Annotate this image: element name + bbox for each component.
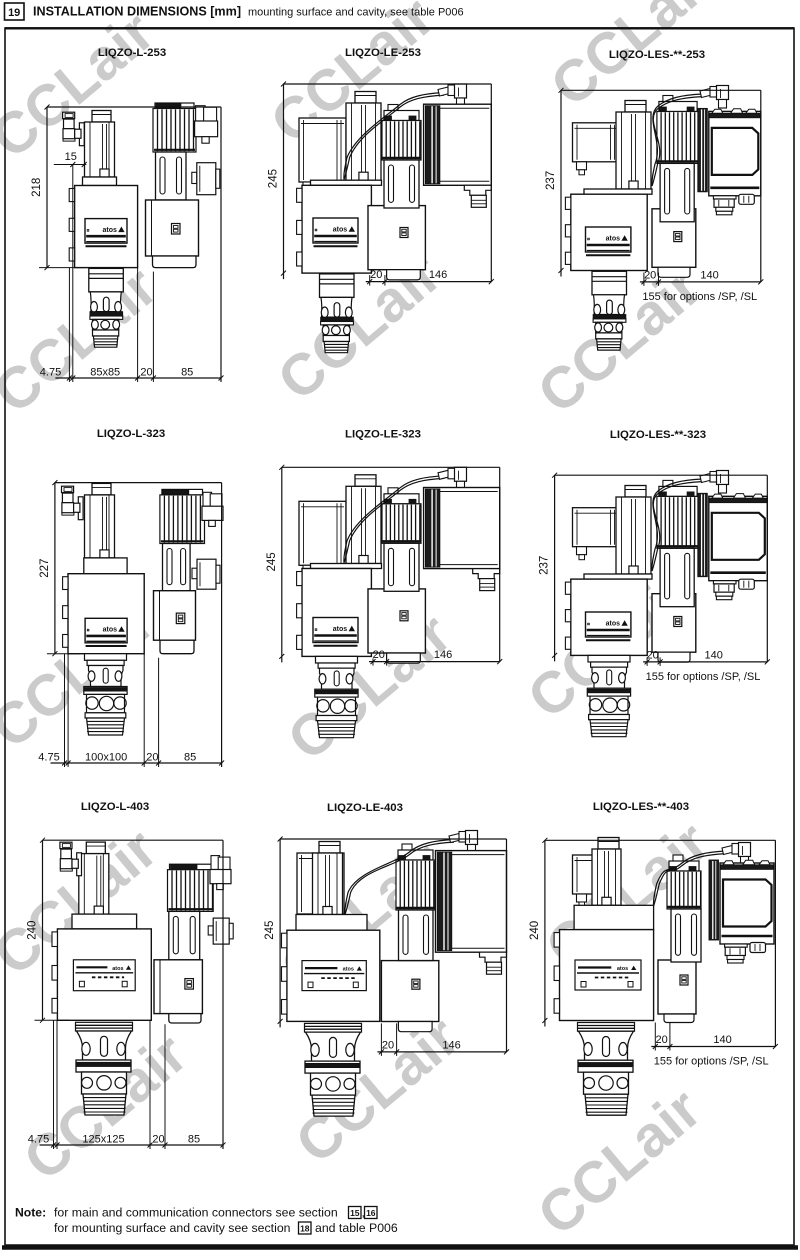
svg-text:LIQZO-LE-323: LIQZO-LE-323 <box>345 429 421 441</box>
svg-text:and table P006: and table P006 <box>315 1221 398 1235</box>
svg-text:20: 20 <box>646 649 658 661</box>
svg-text:LIQZO-L-323: LIQZO-L-323 <box>97 428 165 440</box>
svg-text:LIQZO-LE-403: LIQZO-LE-403 <box>327 802 403 814</box>
svg-text:155 for options /SP, /SL: 155 for options /SP, /SL <box>642 291 757 303</box>
svg-text:LIQZO-L-253: LIQZO-L-253 <box>98 47 166 59</box>
svg-text:19: 19 <box>8 7 20 19</box>
svg-text:85: 85 <box>188 1134 200 1146</box>
svg-text:245: 245 <box>266 552 278 571</box>
svg-text:155 for options /SP, /SL: 155 for options /SP, /SL <box>646 671 761 683</box>
svg-text:atos: atos <box>333 227 348 234</box>
svg-text:Note:: Note: <box>15 1206 46 1220</box>
svg-text:245: 245 <box>264 921 276 940</box>
svg-text:240: 240 <box>27 921 39 940</box>
svg-text:atos: atos <box>103 627 118 634</box>
svg-text:atos: atos <box>617 966 628 972</box>
svg-text:atos: atos <box>102 227 117 234</box>
svg-text:LIQZO-LES-**-403: LIQZO-LES-**-403 <box>593 801 689 813</box>
svg-text:20: 20 <box>655 1034 667 1046</box>
svg-text:85: 85 <box>184 752 196 764</box>
svg-text:20: 20 <box>373 649 385 661</box>
svg-text:atos: atos <box>606 236 621 243</box>
svg-text:237: 237 <box>545 171 557 190</box>
svg-text:for main and communication con: for main and communication connectors se… <box>54 1206 338 1220</box>
svg-text:20: 20 <box>382 1039 394 1051</box>
svg-text:mounting surface and cavity, s: mounting surface and cavity, see table P… <box>248 7 464 19</box>
svg-text:237: 237 <box>539 556 551 575</box>
svg-text:atos: atos <box>112 966 123 972</box>
svg-text:155 for options /SP, /SL: 155 for options /SP, /SL <box>654 1056 769 1068</box>
svg-text:20: 20 <box>152 1134 164 1146</box>
svg-text:85x85: 85x85 <box>90 367 120 379</box>
svg-text:for mounting surface and cavit: for mounting surface and cavity see sect… <box>54 1221 291 1235</box>
svg-text:140: 140 <box>713 1034 731 1046</box>
svg-text:218: 218 <box>31 178 43 197</box>
svg-text:20: 20 <box>140 367 152 379</box>
svg-text:140: 140 <box>705 649 723 661</box>
svg-text:atos: atos <box>333 626 348 633</box>
svg-text:85: 85 <box>181 367 193 379</box>
svg-text:atos: atos <box>606 621 621 628</box>
svg-text:15: 15 <box>350 1208 360 1218</box>
svg-text:140: 140 <box>700 269 718 281</box>
svg-text:18: 18 <box>300 1224 310 1234</box>
svg-text:240: 240 <box>529 921 541 940</box>
svg-text:20: 20 <box>370 269 382 281</box>
svg-text:20: 20 <box>644 269 656 281</box>
svg-text:146: 146 <box>429 269 447 281</box>
svg-text:LIQZO-L-403: LIQZO-L-403 <box>81 801 149 813</box>
svg-text:LIQZO-LES-**-323: LIQZO-LES-**-323 <box>610 429 706 441</box>
svg-text:LIQZO-LE-253: LIQZO-LE-253 <box>345 47 421 59</box>
svg-text:227: 227 <box>39 559 51 578</box>
svg-text:4.75: 4.75 <box>40 367 61 379</box>
svg-text:15: 15 <box>65 151 77 163</box>
svg-text:146: 146 <box>434 649 452 661</box>
svg-text:146: 146 <box>442 1039 460 1051</box>
svg-text:atos: atos <box>343 967 354 973</box>
svg-text:245: 245 <box>268 169 280 188</box>
svg-text:16: 16 <box>366 1208 376 1218</box>
svg-text:4.75: 4.75 <box>38 752 59 764</box>
svg-text:LIQZO-LES-**-253: LIQZO-LES-**-253 <box>609 49 705 61</box>
svg-text:100x100: 100x100 <box>85 752 127 764</box>
svg-text:20: 20 <box>146 752 158 764</box>
svg-text:125x125: 125x125 <box>82 1134 124 1146</box>
svg-text:INSTALLATION DIMENSIONS [mm]: INSTALLATION DIMENSIONS [mm] <box>33 5 241 19</box>
svg-text:4.75: 4.75 <box>28 1134 49 1146</box>
